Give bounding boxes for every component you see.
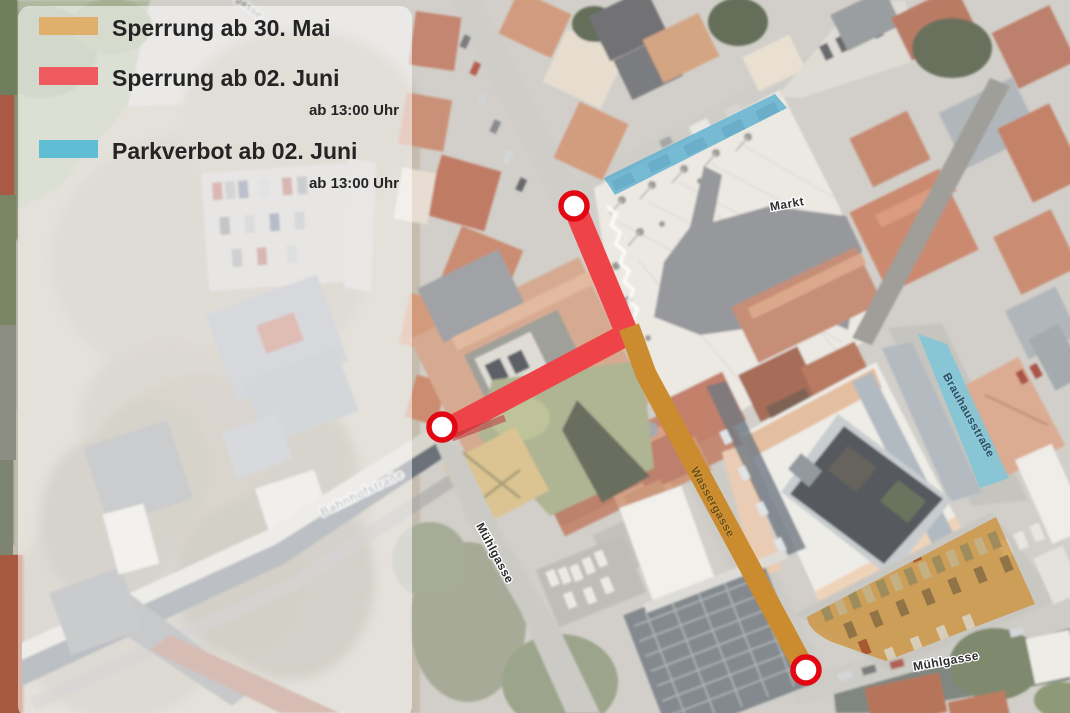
svg-text:ab 13:00 Uhr: ab 13:00 Uhr <box>309 102 399 119</box>
svg-text:Parkverbot ab 02. Juni: Parkverbot ab 02. Juni <box>112 138 357 164</box>
svg-text:ab 13:00 Uhr: ab 13:00 Uhr <box>309 175 399 192</box>
svg-text:Sperrung ab 02. Juni: Sperrung ab 02. Juni <box>112 65 340 91</box>
svg-text:Sperrung ab 30. Mai: Sperrung ab 30. Mai <box>112 15 331 41</box>
